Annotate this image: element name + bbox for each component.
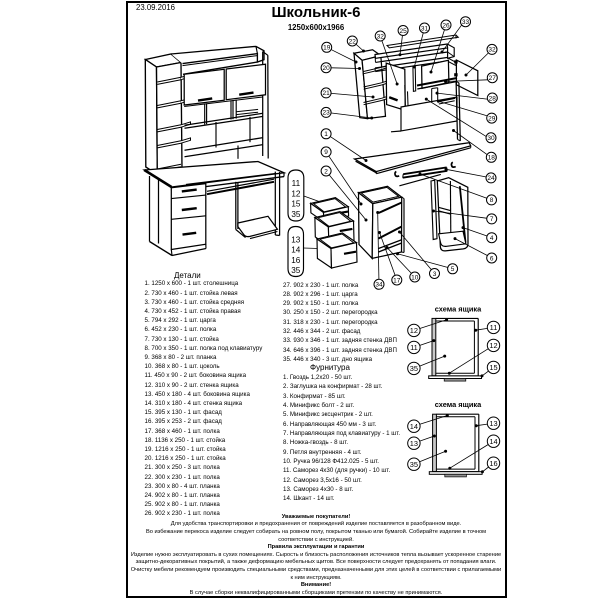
svg-text:13: 13: [489, 419, 497, 428]
svg-text:15: 15: [489, 363, 497, 372]
svg-text:14: 14: [489, 437, 497, 446]
svg-text:24: 24: [487, 175, 495, 182]
svg-text:14: 14: [291, 246, 301, 255]
svg-text:35: 35: [291, 266, 301, 275]
svg-text:6: 6: [490, 255, 494, 262]
svg-text:13: 13: [410, 439, 418, 448]
svg-text:4: 4: [490, 235, 494, 242]
svg-text:22: 22: [349, 38, 357, 45]
svg-text:12: 12: [291, 189, 301, 198]
svg-text:17: 17: [393, 277, 401, 284]
svg-text:схема ящика: схема ящика: [435, 304, 482, 313]
svg-text:35: 35: [410, 364, 418, 373]
svg-text:11: 11: [410, 343, 418, 352]
svg-text:29: 29: [488, 115, 496, 122]
svg-text:31: 31: [421, 25, 429, 32]
svg-text:35: 35: [291, 210, 301, 219]
svg-text:21: 21: [322, 90, 330, 97]
svg-text:27: 27: [489, 75, 497, 82]
svg-text:34: 34: [375, 282, 383, 289]
svg-text:32: 32: [488, 47, 496, 54]
svg-text:25: 25: [399, 28, 407, 35]
svg-text:19: 19: [323, 45, 331, 52]
svg-text:11: 11: [490, 323, 498, 332]
svg-text:20: 20: [322, 65, 330, 72]
svg-text:32: 32: [377, 33, 385, 40]
svg-text:9: 9: [324, 149, 328, 156]
svg-text:33: 33: [462, 19, 470, 26]
svg-text:14: 14: [410, 422, 418, 431]
svg-text:18: 18: [488, 155, 496, 162]
svg-text:28: 28: [489, 95, 497, 102]
svg-text:11: 11: [292, 179, 301, 188]
svg-text:12: 12: [410, 326, 418, 335]
svg-text:5: 5: [451, 266, 455, 273]
svg-text:12: 12: [489, 341, 497, 350]
svg-text:13: 13: [291, 235, 301, 244]
svg-text:2: 2: [324, 168, 328, 175]
svg-text:7: 7: [490, 216, 494, 223]
svg-text:30: 30: [487, 135, 495, 142]
svg-text:1: 1: [324, 131, 328, 138]
svg-text:26: 26: [442, 22, 450, 29]
svg-text:10: 10: [411, 274, 419, 281]
svg-text:35: 35: [410, 460, 418, 469]
svg-text:23: 23: [322, 110, 330, 117]
svg-text:3: 3: [433, 271, 437, 278]
svg-text:16: 16: [489, 459, 497, 468]
svg-text:схема ящика: схема ящика: [435, 400, 482, 409]
svg-text:8: 8: [490, 197, 494, 204]
svg-text:15: 15: [291, 200, 301, 209]
svg-text:16: 16: [291, 256, 301, 265]
